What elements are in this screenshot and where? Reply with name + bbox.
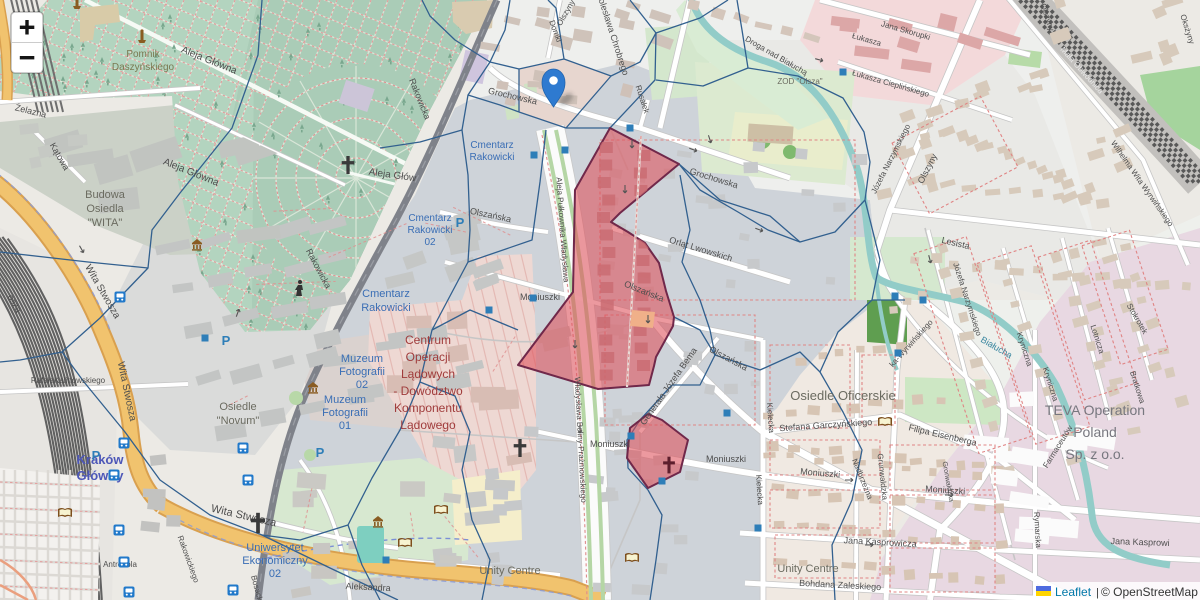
svg-text:P: P <box>456 215 465 230</box>
svg-text:Sp. z o.o.: Sp. z o.o. <box>1065 446 1124 462</box>
svg-text:Centrum: Centrum <box>405 333 451 347</box>
svg-text:Rymarska: Rymarska <box>1032 512 1043 549</box>
svg-text:Moniuszki: Moniuszki <box>706 454 746 464</box>
svg-text:Lądowych: Lądowych <box>401 367 455 381</box>
svg-text:Rakowicki: Rakowicki <box>407 225 452 236</box>
svg-text:Cmentarz: Cmentarz <box>408 213 451 224</box>
svg-text:"Novum": "Novum" <box>217 415 260 427</box>
svg-text:Leaflet: Leaflet <box>1055 585 1092 599</box>
svg-text:Operacji: Operacji <box>406 350 451 364</box>
svg-text:Fotografii: Fotografii <box>339 366 385 378</box>
svg-text:Komponentu: Komponentu <box>394 401 462 415</box>
svg-text:Cmentarz: Cmentarz <box>470 140 513 151</box>
svg-text:Osiedla: Osiedla <box>86 203 124 215</box>
svg-text:Unity Centre: Unity Centre <box>479 565 540 577</box>
svg-text:Uniwersytet: Uniwersytet <box>246 542 303 554</box>
svg-text:|: | <box>1096 587 1099 599</box>
svg-text:RafałaKalinowskiego: RafałaKalinowskiego <box>31 376 106 385</box>
svg-text:Pomnik: Pomnik <box>126 49 160 60</box>
svg-text:Unity Centre: Unity Centre <box>777 563 838 575</box>
svg-text:- Dowództwo: - Dowództwo <box>393 384 463 398</box>
svg-text:02: 02 <box>356 379 368 391</box>
svg-text:"WITA": "WITA" <box>88 217 123 229</box>
svg-text:Poland: Poland <box>1073 424 1117 440</box>
svg-text:Moniuszki: Moniuszki <box>520 292 560 302</box>
svg-text:Lądowego: Lądowego <box>400 418 456 432</box>
svg-text:Kraków: Kraków <box>77 452 125 467</box>
svg-text:© OpenStreetMap: © OpenStreetMap <box>1101 585 1198 599</box>
svg-text:Muzeum: Muzeum <box>341 353 383 365</box>
svg-text:Rakowicki: Rakowicki <box>469 152 514 163</box>
svg-text:Muzeum: Muzeum <box>324 394 366 406</box>
svg-text:ZOD "Olsza": ZOD "Olsza" <box>777 77 822 86</box>
svg-text:Daszyńskiego: Daszyńskiego <box>112 62 175 73</box>
svg-text:02: 02 <box>269 568 281 580</box>
svg-text:Ekonomiczny: Ekonomiczny <box>242 555 308 567</box>
svg-text:Jana Kasprowi: Jana Kasprowi <box>1110 536 1169 548</box>
svg-text:Moniuszki: Moniuszki <box>590 439 630 449</box>
svg-text:Fotografii: Fotografii <box>322 407 368 419</box>
svg-text:Osiedle: Osiedle <box>219 401 256 413</box>
svg-text:Cmentarz: Cmentarz <box>362 288 410 300</box>
svg-text:Budowa: Budowa <box>85 189 126 201</box>
svg-text:P: P <box>92 448 101 463</box>
svg-text:Rakowicki: Rakowicki <box>361 302 411 314</box>
svg-text:P: P <box>316 445 325 460</box>
svg-text:TEVA Operation: TEVA Operation <box>1045 402 1145 418</box>
svg-text:Osiedle Oficerskie: Osiedle Oficerskie <box>790 388 895 403</box>
svg-text:02: 02 <box>424 237 436 248</box>
svg-text:P: P <box>222 333 231 348</box>
svg-text:01: 01 <box>339 420 351 432</box>
